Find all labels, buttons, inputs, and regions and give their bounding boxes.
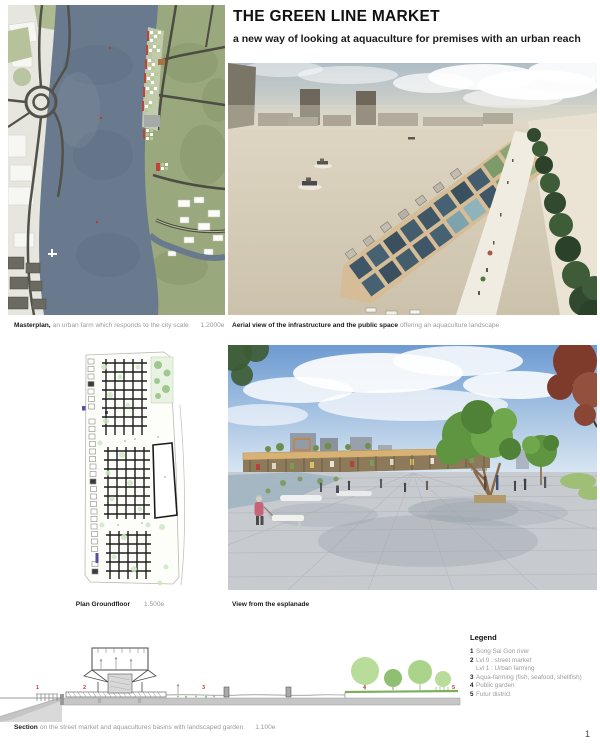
masterplan-map: [8, 5, 225, 315]
tree-planter: [474, 495, 506, 503]
public-garden-section: [345, 657, 458, 698]
map-green-patch: [13, 68, 31, 86]
esplanade-panel: [228, 345, 597, 595]
aqua-basins-section: [166, 684, 345, 698]
bench: [280, 495, 322, 501]
legend-item: Lvl 1 : Urban farming: [470, 665, 596, 674]
esplanade-view-image: [228, 345, 597, 590]
caption-scale: 1.100e: [255, 724, 275, 731]
plan-panel: [30, 347, 202, 600]
caption-scale: 1.500e: [144, 601, 164, 608]
page-number: 1: [585, 729, 590, 739]
garden-shrubs: [436, 687, 448, 690]
legend-item: 1Song Sai Gon river: [470, 648, 596, 657]
aerial-panel: [228, 63, 597, 320]
page-subtitle: a new way of looking at aquaculture for …: [233, 33, 581, 45]
basin-figure: [177, 684, 179, 694]
legend-item: 3Aqua-farming (fish, seafood, shellfish): [470, 674, 596, 683]
caption-bold: Section: [14, 724, 38, 731]
caption-bold: View from the esplanade: [232, 601, 309, 608]
caption-text: offering an aquaculture landscape: [400, 322, 499, 329]
section-marker-1: 1: [36, 685, 39, 691]
esplanade-caption: View from the esplanade: [232, 601, 311, 608]
market-hall-section: [84, 648, 156, 693]
legend-item: 4Public garden: [470, 682, 596, 691]
section-drawing: 1 2 3 4 5: [0, 630, 462, 722]
caption-text: an urban farm which responds to the city…: [53, 322, 189, 329]
legend-item: 2Lvl 0 : street market: [470, 657, 596, 666]
bench: [336, 491, 372, 496]
presentation-board: THE GREEN LINE MARKET a new way of looki…: [0, 0, 600, 750]
legend-item-label: Lvl 1 : Urban farming: [476, 665, 534, 672]
caption-bold: Aerial view of the infrastructure and th…: [232, 322, 398, 329]
large-basin: [153, 443, 177, 518]
section-marker-2: 2: [83, 685, 86, 691]
caption-bold: Masterplan,: [14, 322, 51, 329]
caption-text: on the street market and aquacultures ba…: [40, 724, 243, 731]
section-marker-4: 4: [363, 685, 367, 691]
legend-item-label: Public garden: [476, 682, 515, 689]
plan-groundfloor-drawing: [30, 347, 202, 595]
ground-poche: [0, 694, 460, 722]
section-marker-3: 3: [202, 685, 205, 691]
haze: [228, 105, 597, 129]
page-title: THE GREEN LINE MARKET: [233, 8, 440, 26]
site-outer-curve: [180, 405, 185, 585]
foreground-bench: [272, 515, 304, 521]
legend-item-label: Song Sai Gon river: [476, 648, 529, 655]
masterplan-panel: [8, 5, 225, 320]
legend-title: Legend: [470, 633, 596, 642]
legend: Legend 1Song Sai Gon river 2Lvl 0 : stre…: [470, 633, 596, 700]
plaza: [144, 115, 160, 127]
masterplan-caption: Masterplan,an urban farm which responds …: [14, 322, 224, 329]
legend-item-label: Aqua-farming (fish, seafood, shellfish): [476, 674, 582, 681]
map-green-patch: [8, 27, 32, 63]
aerial-view-image: [228, 63, 597, 315]
caption-scale: 1.2000e: [201, 322, 225, 329]
legend-item-label: Futur district: [476, 691, 511, 698]
person-sitting: [336, 485, 339, 493]
section-caption: Sectionon the street market and aquacult…: [14, 724, 275, 731]
legend-item: 5Futur district: [470, 691, 596, 700]
caption-bold: Plan Groundfloor: [76, 601, 130, 608]
section-marker-5: 5: [452, 685, 455, 691]
legend-item-label: Lvl 0 : street market: [476, 657, 531, 664]
plan-caption: Plan Groundfloor1.500e: [58, 601, 182, 608]
section-panel: 1 2 3 4 5: [0, 630, 462, 727]
aerial-caption: Aerial view of the infrastructure and th…: [232, 322, 499, 329]
